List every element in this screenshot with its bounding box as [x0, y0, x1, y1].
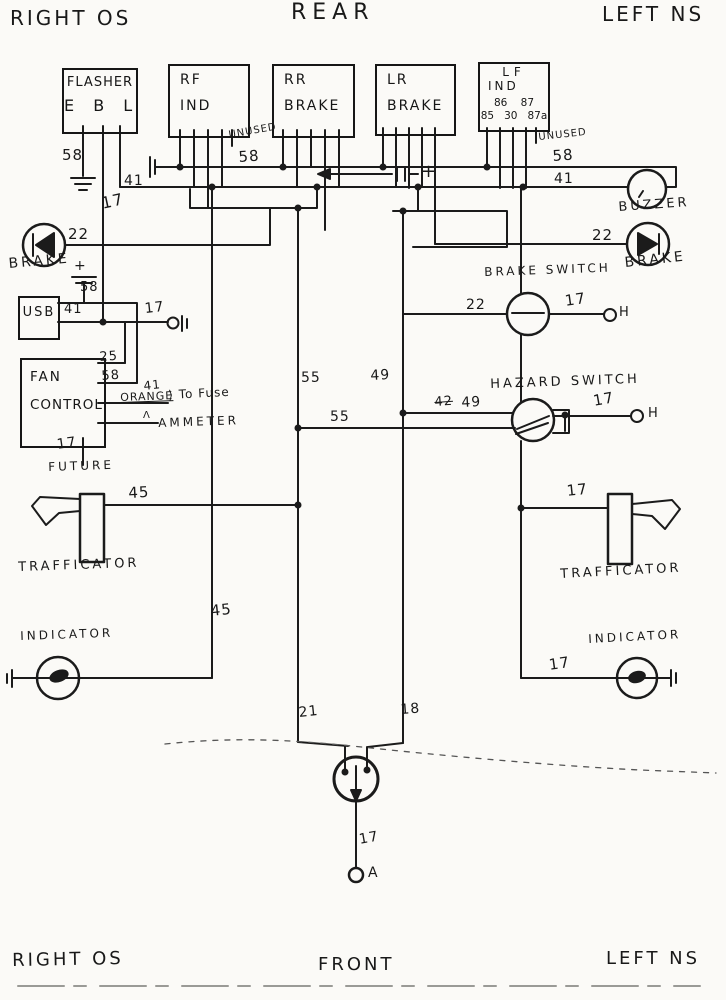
plus-feed: +: [421, 163, 437, 181]
flasher-ebl-label: E B L: [64, 97, 136, 115]
wire-17-left: 17: [100, 191, 125, 211]
ground-symbol-indicator-left: [7, 670, 12, 687]
terminal-a-circle: [349, 868, 363, 882]
wire-41-right: 41: [554, 172, 574, 186]
wire-17-usb: 17: [144, 300, 165, 316]
rr-brake-pins: [283, 130, 339, 230]
ammeter-arrow: Λ: [143, 411, 151, 421]
wire-17-plug: 17: [358, 830, 380, 847]
wire-42-strike: 42: [434, 395, 453, 409]
wire-41-usb: 41: [64, 303, 83, 316]
indicator-right: [521, 658, 676, 698]
bus-58: [150, 157, 676, 187]
lf-indicator-relay-box: LF IND 86 87 85 30 87a: [478, 62, 550, 132]
corner-top-right: LEFT NS: [602, 4, 704, 24]
relay-terminals-bottom: 85 30 87a: [480, 110, 548, 122]
corner-bottom-right: LEFT NS: [606, 950, 700, 968]
wire-58-right: 58: [552, 148, 574, 164]
usb-label: USB: [20, 306, 58, 321]
ground-symbol-flasher: [71, 178, 95, 190]
wire-58-usb: 58: [80, 281, 99, 294]
rf-ind-label: IND: [180, 98, 248, 114]
terminal-usb: [168, 318, 179, 329]
ground-symbol-bus58: [150, 157, 160, 177]
junction-dots: [100, 164, 569, 776]
to-fuse-label: ⟩ To Fuse: [168, 386, 230, 401]
terminal-h-brake-circle: [604, 309, 616, 321]
corner-top-center: REAR: [291, 2, 375, 24]
bus-branch-wires: [65, 187, 507, 247]
flasher-label: FLASHER: [64, 76, 136, 91]
lf-ind-label: IND: [480, 80, 548, 94]
ammeter-label: AMMETER: [158, 414, 239, 429]
terminal-h-hazard: H: [648, 407, 659, 420]
ground-symbol-indicator-right: [671, 670, 676, 686]
wire-41-left: 41: [124, 174, 144, 188]
corner-bottom-left: RIGHT OS: [12, 950, 124, 970]
trafficator-right: [521, 494, 680, 564]
rf-label: RF: [180, 72, 248, 88]
flasher-unit-box: FLASHER E B L: [62, 68, 138, 134]
lf-label: LF: [480, 66, 548, 80]
wire-17-fan: 17: [56, 435, 78, 452]
lr-label: LR: [387, 72, 454, 88]
usb-box: USB: [18, 296, 60, 340]
wire-58-flasher: 58: [62, 148, 83, 163]
wire-22-brake-switch: 22: [466, 298, 486, 312]
wire-17-indicator: 17: [548, 655, 571, 673]
wire-21-plug: 21: [298, 704, 319, 720]
wire-49-hazard: 49: [461, 395, 482, 410]
orange-label: ORANGE: [120, 390, 173, 403]
wire-17-hazard: 17: [592, 390, 615, 408]
lr-brake-box: LR BRAKE: [375, 64, 456, 136]
terminal-h-brake: H: [619, 306, 630, 319]
rr-label: RR: [284, 72, 353, 88]
future-label: FUTURE: [48, 459, 114, 473]
trafficator-left: [32, 494, 298, 562]
vertical-runs: [212, 187, 521, 743]
rr-brake-box: RR BRAKE: [272, 64, 355, 138]
fan-control-box: FAN CONTROL: [20, 358, 106, 448]
corner-top-left: RIGHT OS: [10, 8, 131, 28]
indicator-left: [7, 657, 212, 699]
supply-feed-arrow: [318, 167, 418, 181]
wire-17-brake-switch: 17: [564, 291, 587, 309]
lr-brake-label: BRAKE: [387, 98, 454, 114]
wire-22-right: 22: [592, 228, 613, 243]
wire-45-trafficator: 45: [128, 485, 150, 501]
fan-control-label: CONTROL: [30, 398, 104, 414]
wire-45-indicator: 45: [210, 602, 233, 619]
corner-bottom-center: FRONT: [318, 956, 395, 974]
rf-ind-pins: [180, 130, 232, 208]
wiring-diagram: FLASHER E B L RF IND RR BRAKE LR BRAKE L…: [0, 0, 726, 1000]
plus-usb: +: [74, 259, 87, 273]
terminal-h-hazard-circle: [631, 410, 643, 422]
wire-58-fan: 58: [101, 369, 120, 383]
wire-25-fan: 25: [99, 350, 118, 364]
plug-connector: [298, 742, 403, 882]
rf-indicator-box: RF IND: [168, 64, 250, 138]
wire-18-plug: 18: [400, 702, 421, 717]
rr-brake-label: BRAKE: [284, 98, 353, 114]
wire-58-bus: 58: [238, 149, 260, 165]
terminal-a: A: [368, 866, 379, 880]
wire-49-vertical: 49: [370, 368, 391, 383]
indicator-left-label: INDICATOR: [20, 627, 113, 642]
relay-terminals-top: 86 87: [480, 97, 548, 109]
wiring-svg: [0, 0, 726, 1000]
wire-22-left: 22: [68, 227, 89, 242]
wire-55-horizontal: 55: [330, 410, 350, 424]
wire-17-trafficator: 17: [566, 482, 589, 499]
lf-ind-pins: [487, 128, 536, 188]
wire-55-vertical: 55: [301, 371, 321, 385]
fan-label: FAN: [30, 370, 104, 386]
